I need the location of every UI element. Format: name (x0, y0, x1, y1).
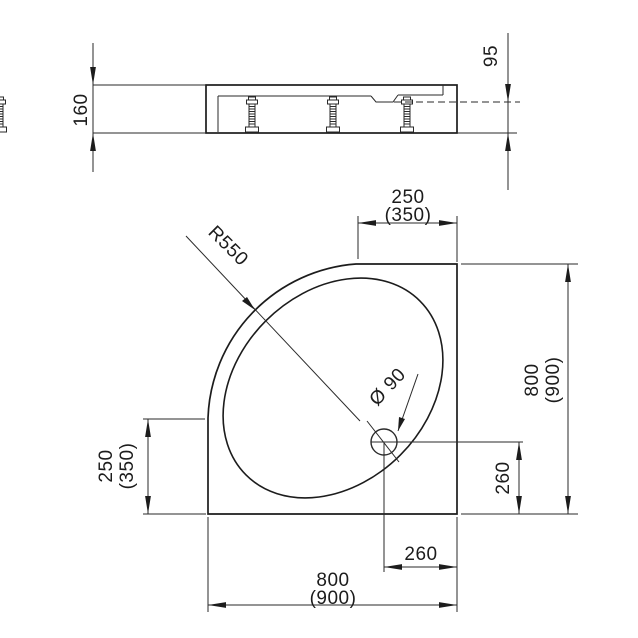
dimension-drain-from-bottom: 260 (493, 442, 519, 514)
drain-from-bottom-label: 260 (493, 461, 514, 494)
side-view: 160 95 (0, 33, 520, 190)
left-depth-label: 250 (96, 449, 117, 482)
bottom-width-alt-label: (900) (310, 588, 357, 609)
left-depth-alt-label: (350) (117, 443, 138, 490)
plan-view: R550 Ø 90 250 (350) 250 (350) (96, 187, 578, 612)
shower-tray-drawing: 160 95 R550 (0, 0, 638, 638)
drain-diameter-label: Ø 90 (366, 364, 411, 410)
side-view-drain-recess (371, 95, 398, 102)
drawing-canvas: 160 95 R550 (0, 0, 638, 638)
radius-arrowhead (242, 297, 255, 310)
foot-left (246, 97, 259, 132)
overall-height-label: 160 (71, 93, 92, 126)
foot (0, 97, 7, 132)
drain-diameter-callout: Ø 90 (366, 364, 418, 431)
drain-arrowhead (398, 417, 405, 431)
drain-symbol (367, 421, 523, 572)
top-width-alt-label: (350) (385, 205, 432, 226)
dimension-basin-depth: 95 (481, 33, 508, 190)
basin-depth-label: 95 (481, 45, 502, 67)
drain-from-right-label: 260 (404, 544, 437, 565)
right-height-label: 800 (522, 363, 543, 396)
dimension-left-depth: 250 (350) (96, 419, 206, 514)
dimension-top-width: 250 (350) (358, 187, 457, 262)
radius-callout: R550 (186, 222, 360, 421)
dimension-drain-from-right: 260 (384, 517, 457, 612)
foot-middle (327, 97, 340, 132)
dimension-overall-height: 160 (71, 43, 206, 172)
right-height-alt-label: (900) (543, 357, 564, 404)
basin-oval (179, 234, 487, 542)
